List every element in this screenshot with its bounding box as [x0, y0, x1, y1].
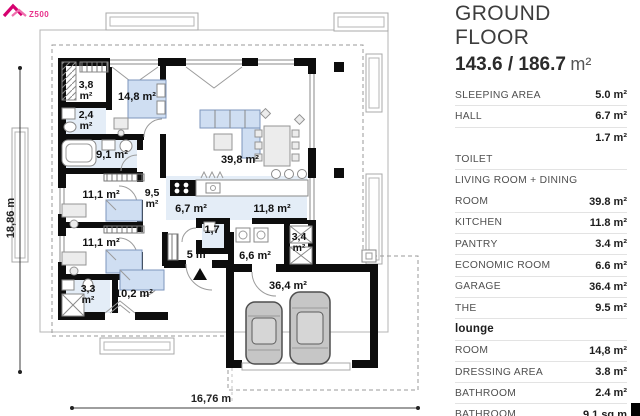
room-name-label: GARAGE: [455, 281, 501, 292]
sink: [206, 183, 220, 193]
room-area-value: 1.7 m²: [595, 132, 627, 144]
area-row: PANTRY3.4 m²: [455, 234, 627, 255]
toilet: [64, 122, 76, 132]
wardrobe-shelves: [62, 62, 76, 100]
room-area-value: 3.4 m²: [595, 238, 627, 250]
car: [246, 302, 282, 364]
room-area-label: 36,4 m²: [269, 280, 307, 292]
desk: [62, 252, 86, 265]
total-area: 143.6 / 186.7 m²: [455, 52, 627, 78]
bar-stool: [298, 170, 307, 179]
area-row: 1.7 m²: [455, 128, 627, 149]
dressing-table: [114, 118, 128, 129]
floor-plan-area: Z500: [0, 0, 448, 416]
room-name-label: LIVING ROOM + DINING: [455, 175, 577, 186]
room-area-label: 14,8 m²: [118, 91, 156, 103]
room-area-label: 11,1 m²: [82, 237, 120, 249]
chimney: [362, 250, 376, 262]
area-row: lounge: [455, 319, 627, 340]
room-name-label: BATHROOM: [455, 388, 516, 399]
room-area-value: 9.5 m²: [595, 302, 627, 314]
room-area-value: 9.1 sq m: [583, 409, 627, 416]
area-row: ROOM14,8 m²: [455, 341, 627, 362]
room-area-label-unit: m²: [82, 294, 95, 306]
room-name-label: DRESSING AREA: [455, 367, 543, 378]
room-name-label: KITCHEN: [455, 217, 502, 228]
bar-stool: [285, 170, 294, 179]
dimension-width: 16,76 m: [70, 393, 420, 410]
area-row: TOILET: [455, 149, 627, 170]
room-name-label: ECONOMIC ROOM: [455, 260, 550, 271]
dining-table: [264, 126, 290, 166]
area-row: ECONOMIC ROOM6.6 m²: [455, 255, 627, 276]
room-name-label: ROOM: [455, 345, 488, 356]
room-name-label: ROOM: [455, 196, 488, 207]
room-area-value: 11.8 m²: [590, 217, 627, 229]
room-area-value: 6.6 m²: [595, 260, 627, 272]
room-area-value: 36.4 m²: [589, 281, 627, 293]
bed: [106, 200, 142, 221]
total-area-unit: m²: [570, 54, 591, 74]
washbasin: [62, 280, 74, 290]
area-row: THE9.5 m²: [455, 298, 627, 319]
dryer: [254, 228, 268, 242]
z500-logo: Z500: [2, 1, 58, 19]
roof-logo-icon: [2, 2, 28, 19]
area-row: BATHROOM2.4 m²: [455, 383, 627, 404]
room-area-value: 14,8 m²: [589, 345, 627, 357]
room-area-value: 6.7 m²: [595, 110, 627, 122]
washer: [236, 228, 250, 242]
stove: [170, 180, 196, 196]
room-area-label: 5 m²: [187, 249, 210, 261]
area-row: GARAGE36.4 m²: [455, 277, 627, 298]
area-row: KITCHEN11.8 m²: [455, 213, 627, 234]
room-area-label: 9,1 m²: [96, 149, 128, 161]
bed: [120, 270, 164, 290]
room-area-label: 11,1 m²: [82, 189, 120, 201]
radiator: [104, 226, 144, 233]
room-area-label: 39,8 m²: [221, 154, 259, 166]
radiator: [104, 174, 144, 181]
height-dim-label: 18,86 m: [5, 198, 17, 239]
room-area-list: SLEEPING AREA5.0 m²HALL6.7 m²1.7 m²TOILE…: [455, 85, 627, 416]
corner-block[interactable]: [631, 403, 640, 416]
area-row: ROOM39.8 m²: [455, 191, 627, 212]
area-row: HALL6.7 m²: [455, 106, 627, 127]
coffee-table: [214, 134, 232, 150]
room-area-label: 6,7 m²: [175, 203, 207, 215]
room-name-label: PANTRY: [455, 239, 498, 250]
area-summary-panel: GROUND FLOOR 143.6 / 186.7 m² SLEEPING A…: [448, 0, 640, 416]
room-area-label: 11,8 m²: [253, 203, 291, 215]
area-row: DRESSING AREA3.8 m²: [455, 362, 627, 383]
floor-plan-svg: 3,8m²14,8 m²2,4m²9,1 m²11,1 m²9,5m²39,8 …: [0, 0, 448, 416]
logo-brand-text: Z500: [29, 11, 49, 19]
wardrobe-shelves: [168, 234, 178, 260]
washbasin: [62, 108, 75, 119]
room-name-label: HALL: [455, 111, 482, 122]
page-title: GROUND FLOOR: [455, 2, 627, 50]
room-name-label: BATHROOM: [455, 409, 516, 416]
area-row: BATHROOM9.1 sq m: [455, 404, 627, 416]
car: [290, 292, 330, 364]
room-name-label: TOILET: [455, 154, 493, 165]
room-name-label: lounge: [455, 323, 494, 335]
desk: [62, 204, 86, 217]
area-row: LIVING ROOM + DINING: [455, 170, 627, 191]
entrance-arrow-icon: [193, 268, 207, 280]
room-area-label: 10,2 m²: [115, 288, 153, 300]
room-area-label-unit: m²: [146, 198, 159, 210]
room-area-label: 6,6 m²: [239, 250, 271, 262]
room-area-value: 3.8 m²: [595, 366, 627, 378]
room-name-label: SLEEPING AREA: [455, 90, 541, 101]
width-dim-label: 16,76 m: [191, 393, 232, 405]
room-area-value: 2.4 m²: [595, 387, 627, 399]
room-area-label-unit: m²: [293, 242, 306, 254]
room-area-value: 5.0 m²: [595, 89, 627, 101]
bar-stool: [272, 170, 281, 179]
room-name-label: THE: [455, 303, 477, 314]
screenshot-root: Z500: [0, 0, 640, 416]
room-area-label-unit: m²: [80, 120, 93, 132]
total-area-values: 143.6 / 186.7: [455, 54, 566, 75]
room-area-label: 1,7: [204, 224, 219, 236]
room-area-label-unit: m²: [80, 90, 93, 102]
area-row: SLEEPING AREA5.0 m²: [455, 85, 627, 106]
room-area-value: 39.8 m²: [589, 196, 627, 208]
